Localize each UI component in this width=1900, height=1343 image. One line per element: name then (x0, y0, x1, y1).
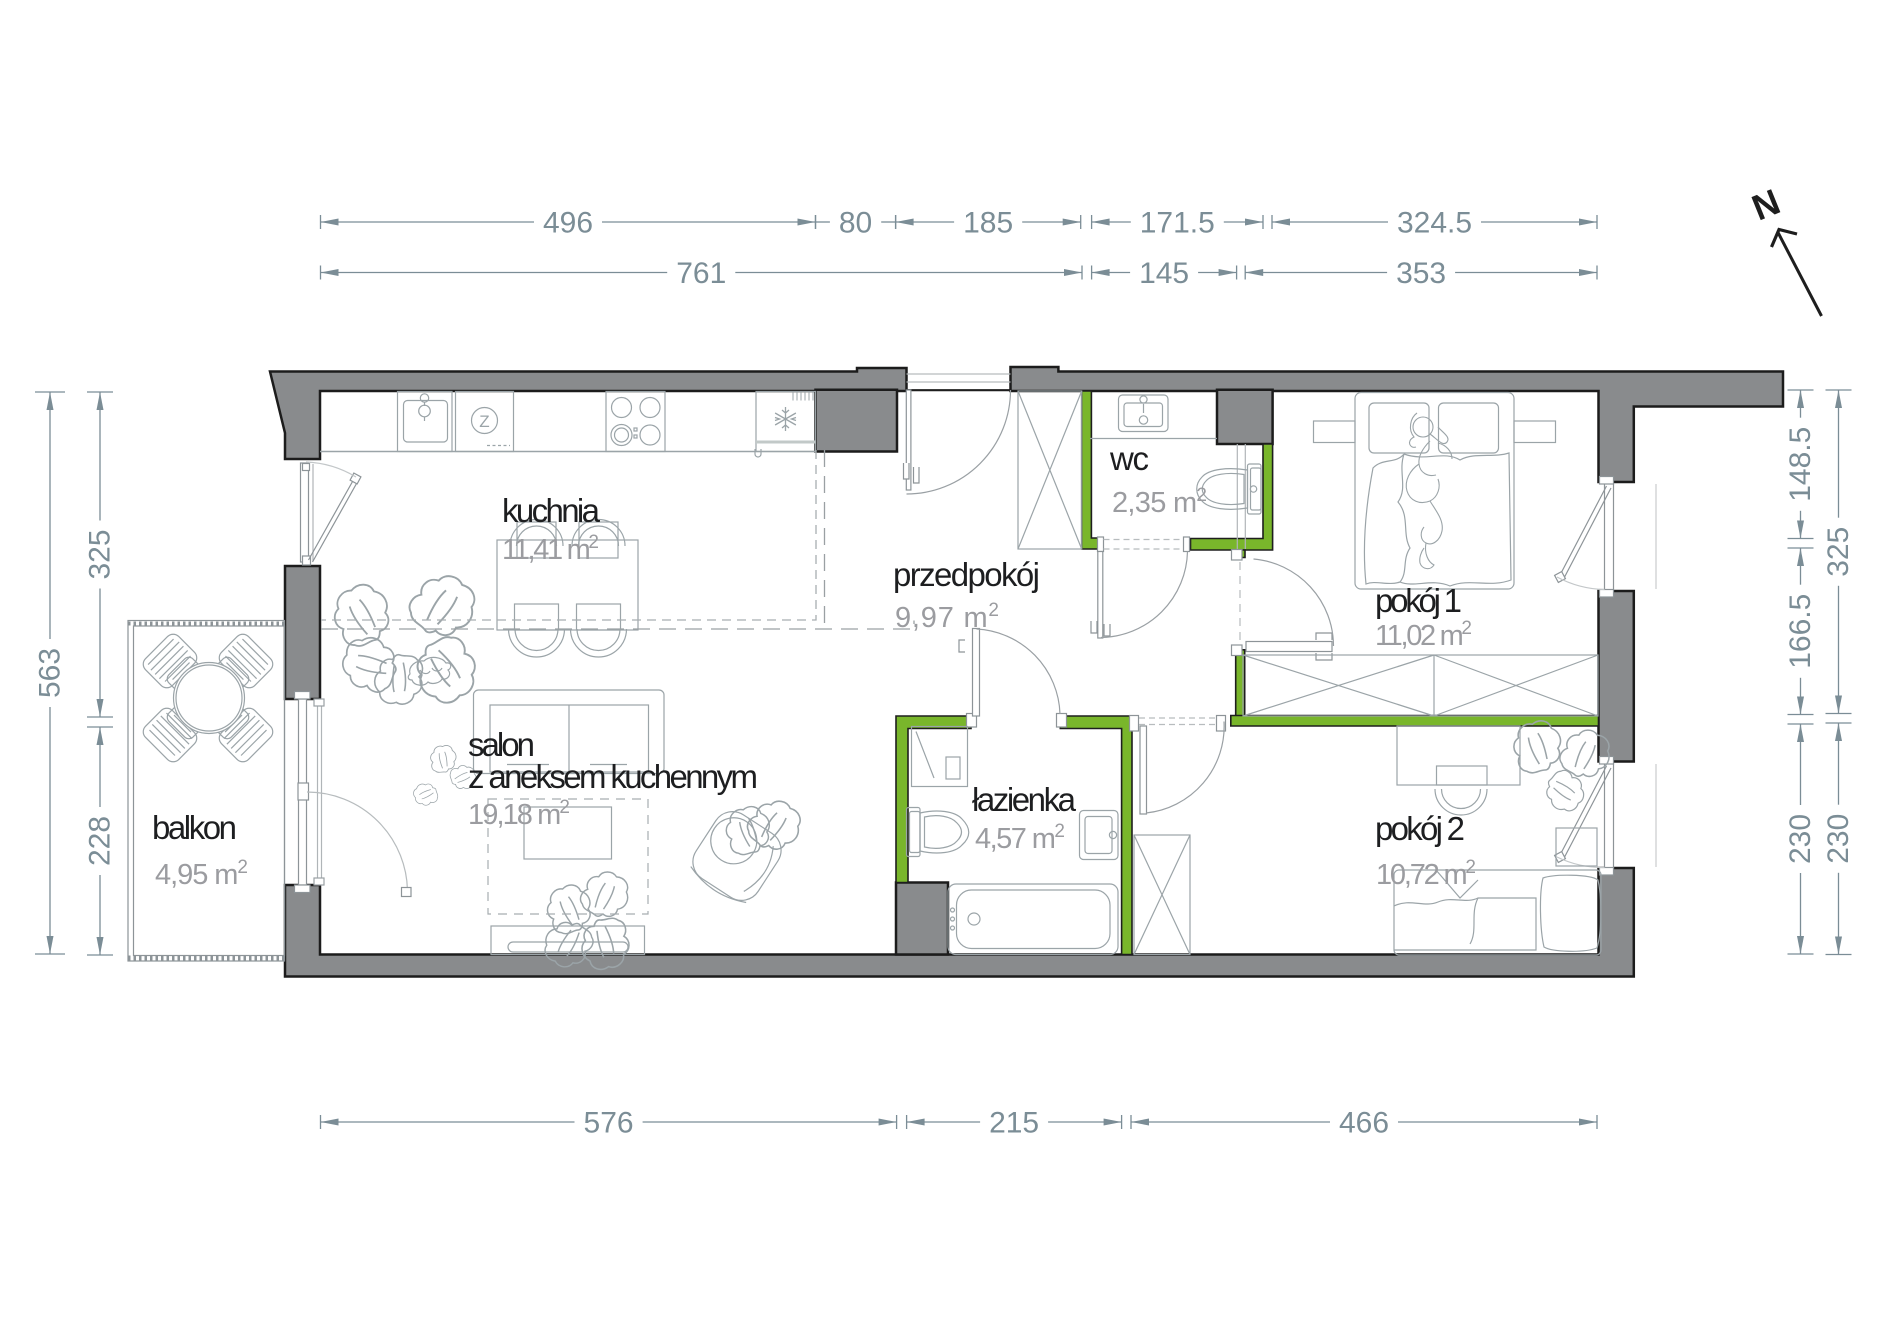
svg-text:761: 761 (676, 257, 726, 290)
svg-text:576: 576 (584, 1107, 634, 1140)
svg-text:19,18 m2: 19,18 m2 (468, 797, 570, 831)
svg-text:230: 230 (1784, 814, 1817, 864)
svg-text:353: 353 (1396, 257, 1446, 290)
svg-text:pokój 2: pokój 2 (1375, 810, 1465, 847)
svg-text:228: 228 (84, 816, 117, 866)
svg-text:przedpokój: przedpokój (893, 556, 1040, 593)
svg-text:324.5: 324.5 (1397, 207, 1472, 240)
svg-text:łazienka: łazienka (972, 781, 1077, 818)
svg-text:230: 230 (1822, 814, 1855, 864)
svg-text:171.5: 171.5 (1140, 207, 1215, 240)
svg-text:466: 466 (1339, 1107, 1389, 1140)
svg-text:4,57 m2: 4,57 m2 (975, 821, 1065, 855)
svg-text:496: 496 (543, 207, 593, 240)
svg-text:185: 185 (963, 207, 1013, 240)
svg-text:balkon: balkon (152, 809, 237, 846)
svg-text:80: 80 (839, 207, 872, 240)
svg-text:215: 215 (989, 1107, 1039, 1140)
svg-text:11,41 m2: 11,41 m2 (502, 532, 599, 566)
svg-text:166.5: 166.5 (1784, 594, 1817, 669)
svg-text:z aneksem kuchennym: z aneksem kuchennym (468, 758, 758, 795)
svg-text:9,97 m2: 9,97 m2 (895, 600, 999, 634)
svg-text:wc: wc (1109, 440, 1149, 477)
svg-text:4,95 m2: 4,95 m2 (155, 857, 248, 891)
svg-text:148.5: 148.5 (1784, 427, 1817, 502)
svg-text:145: 145 (1139, 257, 1189, 290)
svg-text:2,35 m2: 2,35 m2 (1112, 485, 1207, 519)
svg-text:kuchnia: kuchnia (502, 492, 601, 529)
svg-text:325: 325 (1822, 527, 1855, 577)
svg-text:Z: Z (479, 412, 489, 431)
svg-text:325: 325 (84, 529, 117, 579)
svg-text:11,02 m2: 11,02 m2 (1375, 618, 1472, 652)
svg-text:563: 563 (34, 648, 67, 698)
svg-text:10,72 m2: 10,72 m2 (1376, 857, 1476, 891)
svg-text:pokój 1: pokój 1 (1375, 582, 1462, 619)
